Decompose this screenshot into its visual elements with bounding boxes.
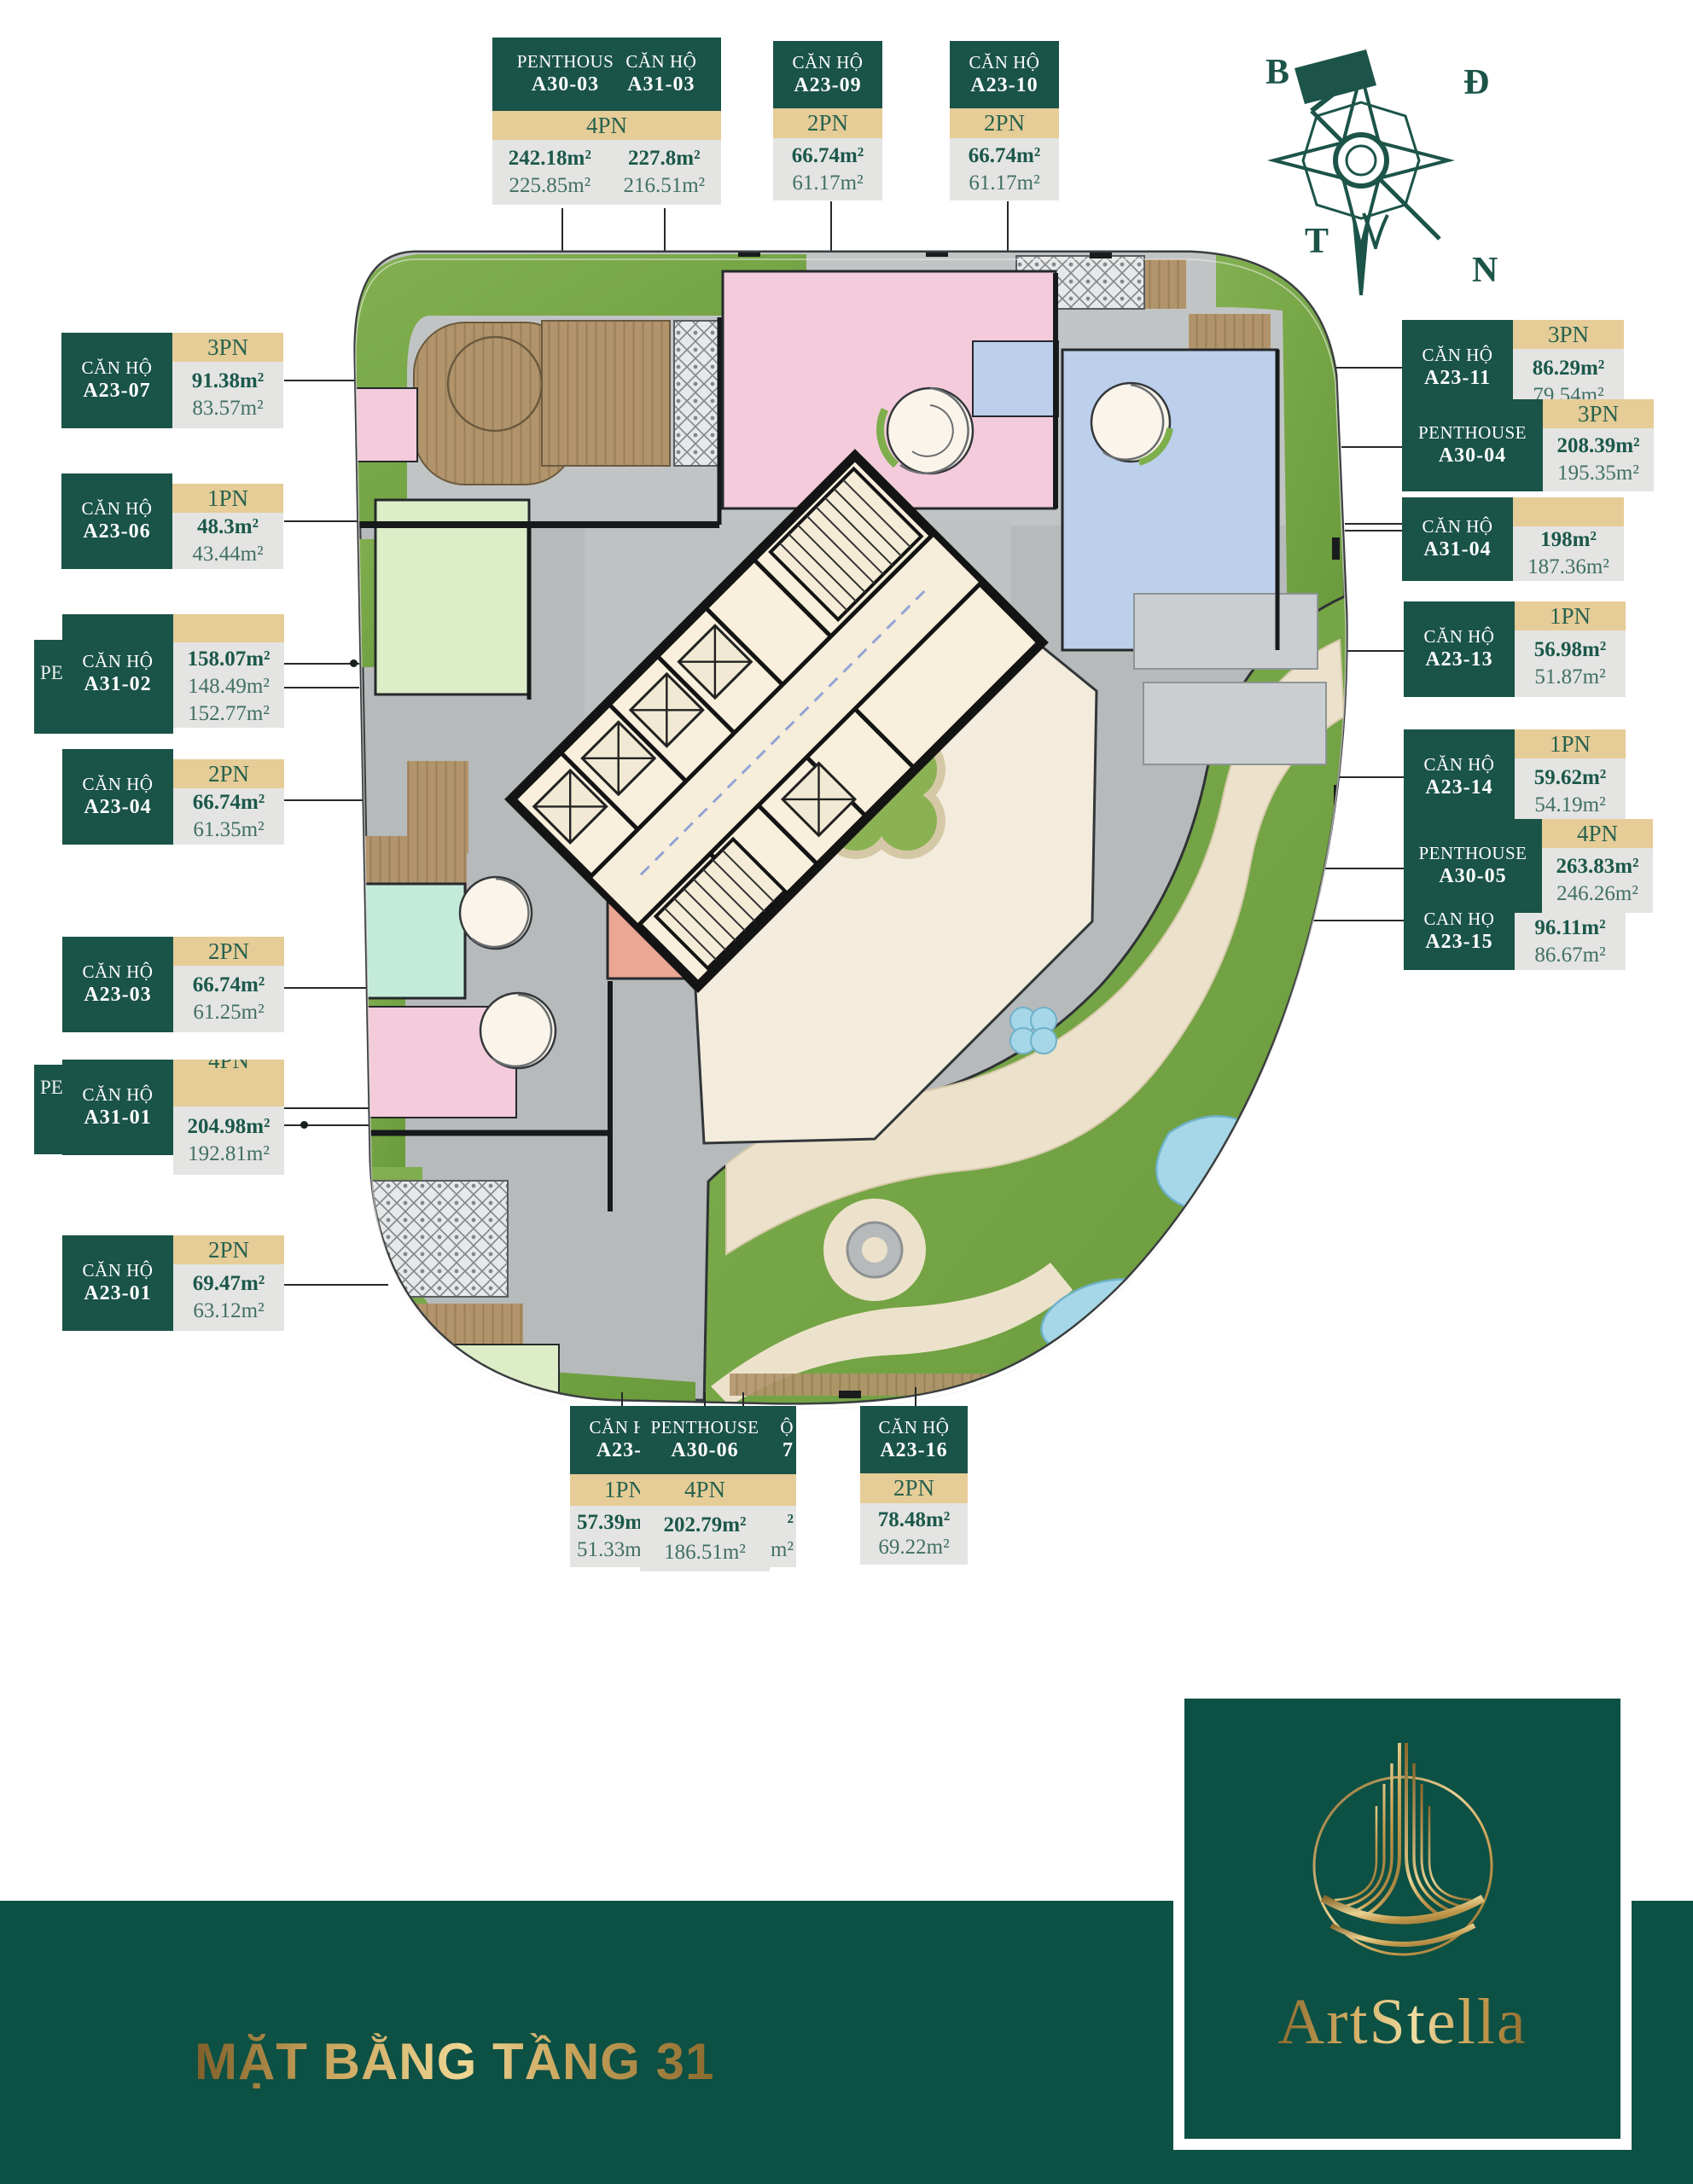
bedroom-count xyxy=(173,614,284,642)
bedroom-count: 2PN xyxy=(950,108,1059,138)
unit-code: A30-04 xyxy=(1439,444,1506,468)
unit-label-a23-03: CĂN HỘ A23-03 2PN 66.74m² 61.25m² xyxy=(62,937,284,1032)
net-area: 195.35m² xyxy=(1543,460,1654,487)
bedroom-count xyxy=(1513,497,1624,526)
net-area-alt: 152.77m² xyxy=(173,700,284,728)
unit-code: A23-11 xyxy=(1424,366,1491,390)
unit-code: A23-13 xyxy=(1425,648,1492,671)
unit-code: A31-04 xyxy=(1423,537,1491,561)
unit-label-a23-09: CĂN HỘ A23-09 2PN 66.74m² 61.17m² xyxy=(773,41,882,200)
unit-code: A30-05 xyxy=(1439,864,1506,888)
remnant-glyph: Ộ xyxy=(780,1417,794,1438)
net-area: 51.87m² xyxy=(1515,664,1626,691)
unit-type: CĂN HỘ xyxy=(82,498,153,520)
bedroom-count: 3PN xyxy=(172,333,283,362)
compass-west-label: T xyxy=(1305,222,1329,261)
unit-type: CĂN HỘ xyxy=(83,1260,154,1281)
unit-code: A30-03 xyxy=(532,73,599,96)
unit-code: A23-03 xyxy=(84,983,151,1007)
unit-type: PENTHOUSE xyxy=(1418,843,1527,864)
bedroom-count: 1PN xyxy=(1515,729,1626,758)
remnant-glyph: 7 xyxy=(783,1438,794,1462)
net-area: 225.85m² xyxy=(509,172,591,200)
bedroom-count: 3PN xyxy=(1543,399,1654,428)
unit-code: A31-02 xyxy=(84,672,151,696)
bedroom-count: 1PN xyxy=(172,484,283,513)
unit-code: A23-01 xyxy=(84,1281,151,1305)
unit-type: PENTHOUS xyxy=(517,51,614,73)
unit-type: CĂN HỘ xyxy=(82,357,153,379)
gross-area: 202.79m² xyxy=(640,1512,770,1539)
net-area: 216.51m² xyxy=(623,172,705,200)
net-area: 63.12m² xyxy=(173,1298,284,1325)
unit-type: CĂN HỘ xyxy=(625,51,696,73)
compass-east-label: Đ xyxy=(1463,63,1489,102)
net-area: 61.17m² xyxy=(773,170,882,197)
unit-label-a23-14: CĂN HỘ A23-14 1PN 59.62m² 54.19m² xyxy=(1404,729,1626,825)
remnant-glyph: m² xyxy=(771,1536,794,1564)
unit-type: CĂN HỘ xyxy=(969,52,1040,73)
net-area: 148.49m² xyxy=(173,673,284,700)
unit-code: A31-03 xyxy=(627,73,695,96)
unit-label-a23-13: CĂN HỘ A23-13 1PN 56.98m² 51.87m² xyxy=(1404,601,1626,697)
unit-label-a23-06: CĂN HỘ A23-06 1PN 48.3m² 43.44m² xyxy=(61,473,283,569)
unit-type: CĂN HỘ xyxy=(879,1417,950,1438)
net-area: 69.22m² xyxy=(860,1534,968,1561)
net-area: 192.81m² xyxy=(173,1141,284,1168)
gross-area: 242.18m² xyxy=(509,145,591,172)
gross-area: 59.62m² xyxy=(1515,764,1626,792)
artstella-logo-icon xyxy=(1275,1728,1531,1984)
connector-line xyxy=(915,1387,916,1406)
connector-line xyxy=(704,1392,706,1406)
unit-label-a23-16: CĂN HỘ A23-16 2PN 78.48m² 69.22m² xyxy=(860,1406,968,1565)
unit-type: CĂN HỘ xyxy=(1424,626,1495,648)
unit-type: CĂN HỘ xyxy=(83,651,154,672)
bedroom-count: 2PN xyxy=(173,759,284,788)
net-area: 86.67m² xyxy=(1515,942,1626,969)
unit-code: A23-07 xyxy=(83,379,150,403)
bedroom-count: 4PN xyxy=(492,111,721,140)
unit-code: A23-09 xyxy=(794,73,861,97)
net-area: 61.35m² xyxy=(173,816,284,844)
unit-label-a30-06: PENTHOUSE A30-06 4PN 202.79m² 186.51m² xyxy=(640,1406,770,1571)
unit-type: CĂN HỘ xyxy=(83,774,154,795)
bedroom-count: 1PN xyxy=(1515,601,1626,630)
gross-area: 208.39m² xyxy=(1543,433,1654,460)
bedroom-count: 4PN xyxy=(173,1060,284,1075)
brand-wordmark: ArtStella xyxy=(1277,1985,1527,2059)
gross-area: 158.07m² xyxy=(173,646,284,673)
net-area: 61.25m² xyxy=(173,999,284,1026)
bedroom-count: 2PN xyxy=(860,1473,968,1503)
unit-code: A30-06 xyxy=(671,1438,738,1462)
gross-area: 69.47m² xyxy=(173,1270,284,1298)
gross-area: 91.38m² xyxy=(172,368,283,395)
unit-type: CĂN HỘ xyxy=(1422,516,1493,537)
bedroom-count: 2PN xyxy=(173,937,284,966)
gross-area: 198m² xyxy=(1513,526,1624,554)
gross-area: 57.39m² xyxy=(577,1509,649,1536)
unit-label-a30-05: PENTHOUSE A30-05 4PN 263.83m² 246.26m² xyxy=(1404,819,1653,913)
unit-code: A31-01 xyxy=(84,1106,151,1130)
unit-label-a31-01: CĂN HỘ A31-01 4PN 204.98m² 192.81m² xyxy=(62,1060,284,1175)
unit-label-a30-03-a31-03: PENTHOUS A30-03 CĂN HỘ A31-03 4PN 242.18… xyxy=(492,38,721,205)
gross-area: 78.48m² xyxy=(860,1507,968,1534)
compass-south-label: N xyxy=(1472,251,1498,290)
gross-area: 204.98m² xyxy=(173,1113,284,1141)
connector-line xyxy=(1345,530,1402,531)
remnant-glyph: ² xyxy=(788,1509,794,1536)
net-area: 54.19m² xyxy=(1515,792,1626,819)
connector-line xyxy=(621,1392,623,1406)
connector-dot xyxy=(300,1121,308,1129)
unit-code: A23-10 xyxy=(970,73,1038,97)
bedroom-count: 2PN xyxy=(773,108,882,138)
connector-line xyxy=(1345,523,1402,525)
gross-area: 66.74m² xyxy=(173,972,284,999)
floor-plan xyxy=(329,239,1348,1425)
gross-area: 263.83m² xyxy=(1542,853,1653,880)
gross-area: 96.11m² xyxy=(1515,915,1626,942)
gross-area: 66.74m² xyxy=(773,142,882,170)
unit-type: CĂN HỘ xyxy=(83,1084,154,1106)
penthouse-chip-text: PE xyxy=(40,1077,63,1098)
bedroom-count: 2PN xyxy=(173,1235,284,1264)
unit-type: CĂN HỘ xyxy=(83,961,154,983)
unit-label-a30-04: PENTHOUSE A30-04 3PN 208.39m² 195.35m² xyxy=(1402,399,1654,491)
unit-label-a23-01: CĂN HỘ A23-01 2PN 69.47m² 63.12m² xyxy=(62,1235,284,1331)
gross-area: 66.74m² xyxy=(950,142,1059,170)
bedroom-count: 4PN xyxy=(1542,819,1653,848)
unit-label-a23-04: CĂN HỘ A23-04 2PN 66.74m² 61.35m² xyxy=(62,749,284,845)
connector-line xyxy=(1341,446,1402,448)
net-area: 51.33m² xyxy=(577,1536,648,1564)
net-area: 83.57m² xyxy=(172,395,283,422)
compass-rose: B Đ T N xyxy=(1216,24,1498,297)
gross-area: 227.8m² xyxy=(623,145,705,172)
gross-area: 86.29m² xyxy=(1513,355,1624,382)
net-area: 186.51m² xyxy=(640,1539,770,1566)
unit-code: A23-06 xyxy=(83,520,150,543)
unit-type: CĂN HỘ xyxy=(1424,754,1495,775)
unit-code: A23-04 xyxy=(84,795,151,819)
gross-area: 48.3m² xyxy=(172,514,283,541)
unit-label-a23-10: CĂN HỘ A23-10 2PN 66.74m² 61.17m² xyxy=(950,41,1059,200)
bedroom-count: 3PN xyxy=(1513,320,1624,349)
unit-code: A23-14 xyxy=(1425,775,1492,799)
net-area: 61.17m² xyxy=(950,170,1059,197)
penthouse-chip-text: PE xyxy=(40,662,63,683)
unit-type: PENTHOUSE xyxy=(650,1417,759,1438)
net-area: 43.44m² xyxy=(172,541,283,568)
bedroom-count: 4PN xyxy=(640,1474,770,1506)
net-area: 187.36m² xyxy=(1513,554,1624,581)
gross-area: 66.74m² xyxy=(173,789,284,816)
brand-logo-box: ArtStella xyxy=(1173,1687,1632,2150)
compass-north-label: B xyxy=(1265,53,1289,92)
unit-label-a23-07: CĂN HỘ A23-07 3PN 91.38m² 83.57m² xyxy=(61,333,283,428)
unit-type: CĂN HỘ xyxy=(793,52,864,73)
unit-type: CĂN HỘ xyxy=(1422,345,1493,366)
gross-area: 56.98m² xyxy=(1515,636,1626,664)
unit-code: A23-16 xyxy=(880,1438,947,1462)
page-title: MẶT BẰNG TẦNG 31 xyxy=(195,2032,714,2091)
connector-line xyxy=(742,1392,744,1406)
unit-label-a31-02: CĂN HỘ A31-02 158.07m² 148.49m² 152.77m² xyxy=(62,614,284,734)
unit-type: PENTHOUSE xyxy=(1418,422,1527,444)
unit-code: A23-15 xyxy=(1425,930,1492,954)
net-area: 246.26m² xyxy=(1542,880,1653,908)
unit-label-a31-04: CĂN HỘ A31-04 198m² 187.36m² xyxy=(1402,497,1624,581)
